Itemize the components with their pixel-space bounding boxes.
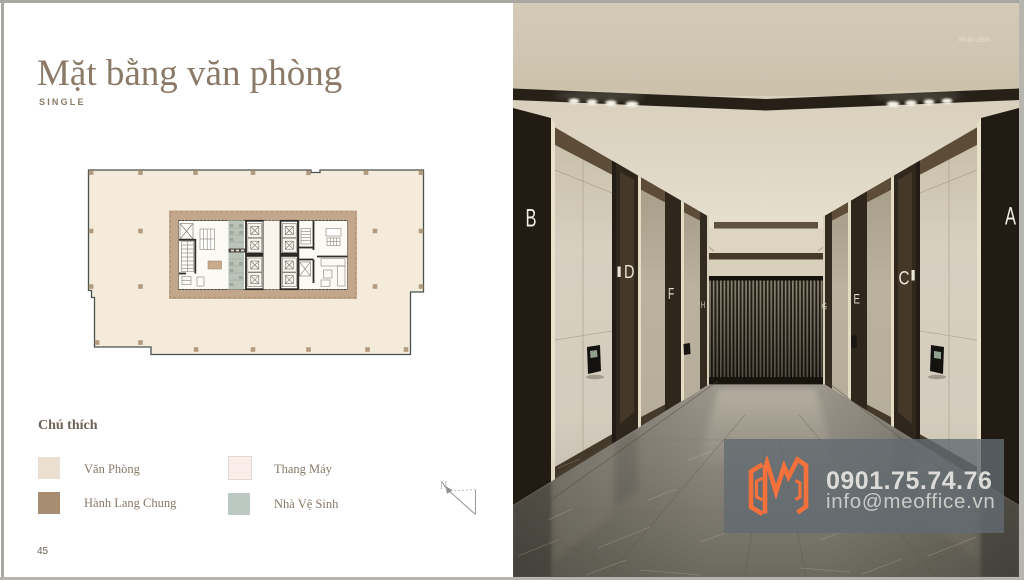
- svg-text:H: H: [701, 300, 706, 310]
- svg-text:N: N: [440, 481, 447, 492]
- svg-text:G: G: [822, 302, 827, 313]
- svg-text:B: B: [526, 205, 537, 233]
- svg-text:Phối cảnh: Phối cảnh: [959, 35, 990, 44]
- svg-text:A: A: [1005, 203, 1016, 231]
- svg-text:E: E: [854, 291, 861, 307]
- svg-text:C: C: [899, 269, 910, 290]
- svg-text:D: D: [624, 261, 635, 282]
- svg-text:F: F: [668, 286, 674, 303]
